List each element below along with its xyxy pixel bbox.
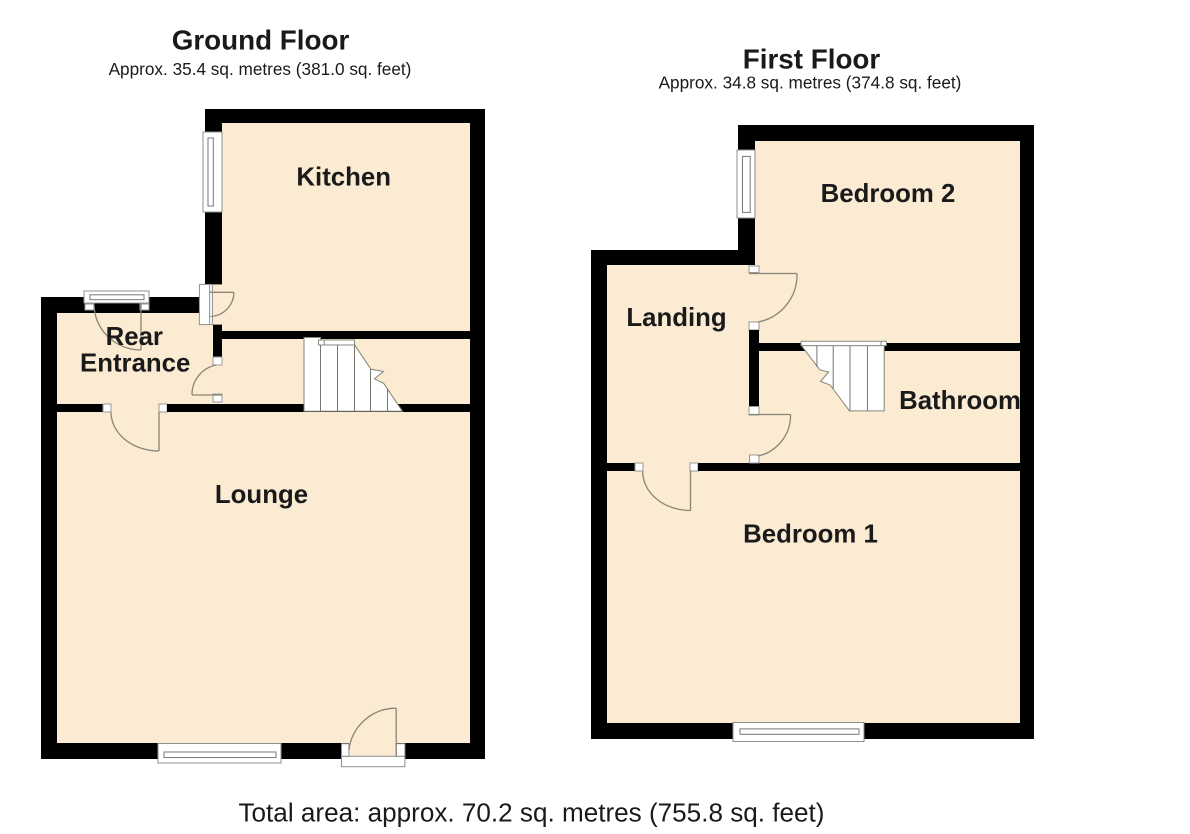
svg-text:Lounge: Lounge (215, 481, 308, 509)
svg-text:First Floor: First Floor (743, 44, 881, 75)
svg-text:Bedroom 1: Bedroom 1 (743, 521, 878, 549)
svg-text:Entrance: Entrance (80, 350, 190, 378)
svg-text:Ground Floor: Ground Floor (172, 25, 350, 56)
svg-text:Rear: Rear (106, 323, 163, 351)
svg-text:Bedroom 2: Bedroom 2 (821, 180, 956, 208)
svg-text:Kitchen: Kitchen (296, 164, 391, 192)
svg-text:Approx. 35.4 sq. metres (381.0: Approx. 35.4 sq. metres (381.0 sq. feet) (109, 59, 412, 79)
svg-text:Total area: approx. 70.2 sq. m: Total area: approx. 70.2 sq. metres (755… (239, 797, 825, 827)
svg-text:Approx. 34.8 sq. metres (374.8: Approx. 34.8 sq. metres (374.8 sq. feet) (659, 73, 962, 93)
svg-text:Landing: Landing (626, 304, 726, 332)
svg-text:Bathroom: Bathroom (899, 387, 1021, 415)
